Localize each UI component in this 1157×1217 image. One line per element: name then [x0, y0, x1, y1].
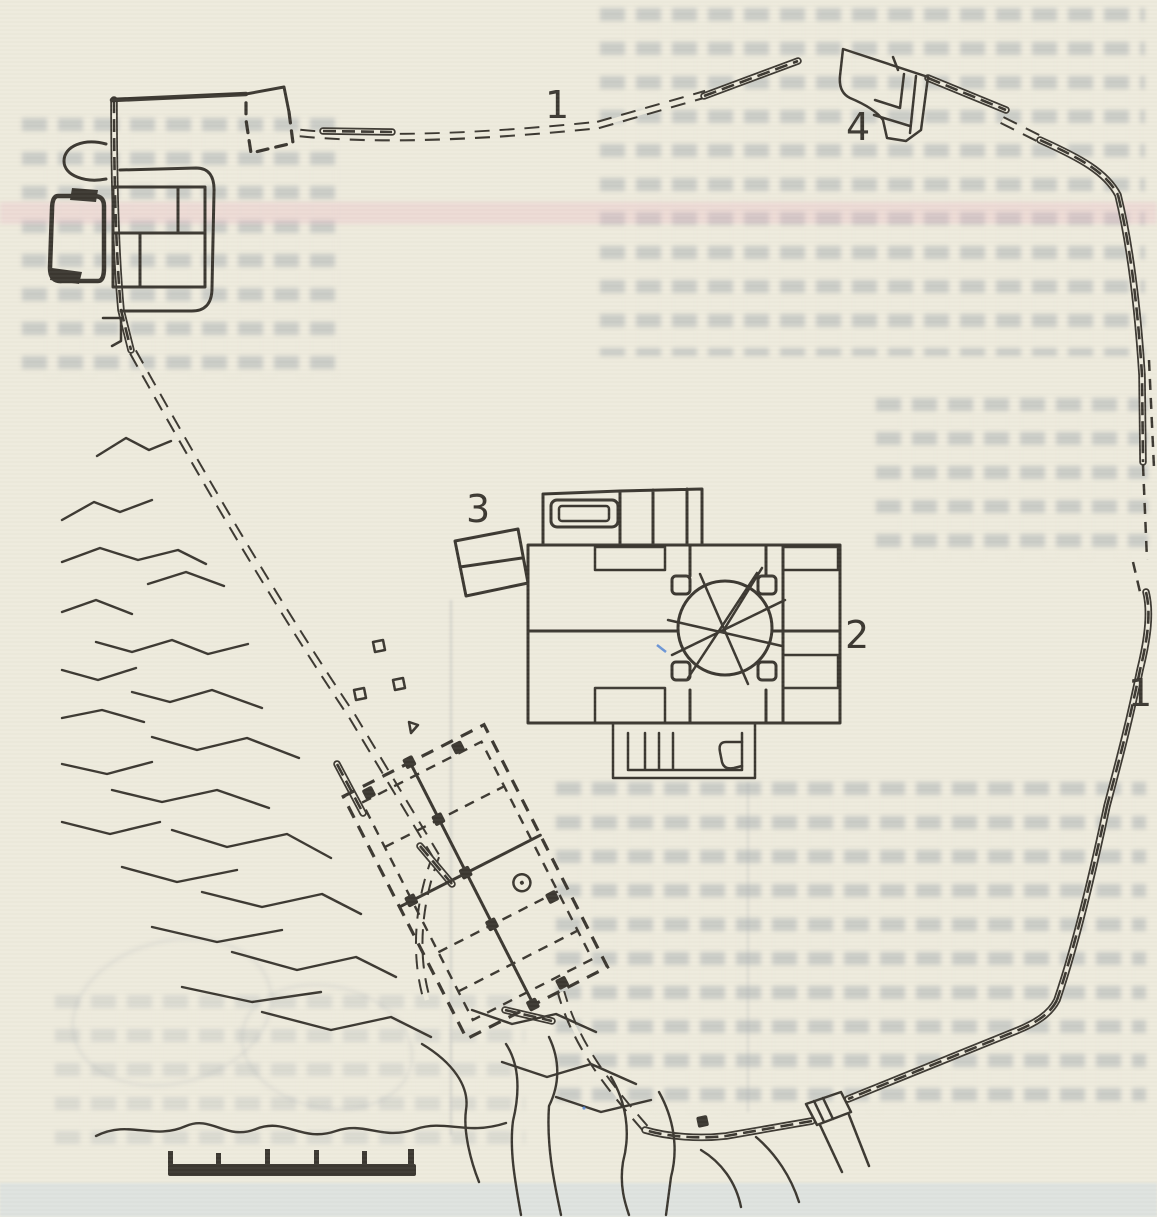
church-main-rect — [528, 545, 840, 723]
label-wall-north: 1 — [545, 83, 569, 127]
erosion-gullies — [62, 438, 799, 1215]
scattered-stones — [354, 640, 418, 733]
north-gate-passage — [874, 74, 916, 133]
tilted-tower-dashed-edge — [246, 96, 293, 153]
compound-well-dot — [519, 880, 524, 885]
church-recess-sw — [595, 688, 665, 723]
church-recess-nw — [595, 547, 665, 570]
dome-pier-nw — [672, 576, 690, 594]
church-axis-walls — [528, 547, 840, 723]
label-north-gate: 4 — [846, 105, 870, 149]
scanned-book-page: 1 1 2 3 4 — [0, 0, 1157, 1217]
dome-pier-se — [758, 662, 776, 680]
enclosure-wall — [133, 61, 1154, 1137]
church-recess-se — [783, 655, 838, 688]
scale-bar-ticks — [168, 1149, 414, 1165]
site-plan-figure: 1 1 2 3 4 — [0, 0, 1157, 1217]
gatehouse-north-wall — [112, 94, 246, 100]
south-gate — [696, 1092, 869, 1172]
label-central-building: 2 — [845, 613, 869, 657]
church-recess-ne — [783, 547, 838, 570]
church-nw-room-inner — [559, 506, 609, 521]
enclosure-wall-preserved-sections — [323, 61, 1148, 1137]
church-plan — [528, 489, 840, 778]
gatehouse-west-room — [50, 196, 104, 281]
church-porch-notch — [720, 742, 742, 768]
gatehouse-main-room — [120, 168, 214, 311]
dome-pier-ne — [758, 576, 776, 594]
curved-hook-wall — [64, 142, 106, 180]
scale-bar — [168, 1149, 416, 1176]
gatehouse-south-step — [103, 318, 121, 346]
south-gate-passage-walls — [820, 1115, 869, 1172]
gatehouse-inner-rooms — [113, 187, 205, 287]
gatehouse-complex — [50, 87, 293, 350]
wall-junction-pier — [696, 1115, 709, 1128]
small-building-outline — [455, 529, 528, 596]
church-north-block — [620, 489, 702, 545]
label-wall-east: 1 — [1128, 671, 1152, 715]
label-small-building: 3 — [466, 487, 490, 531]
wall-rubble — [50, 188, 98, 284]
church-south-porch — [613, 723, 755, 778]
north-gate-tick — [893, 57, 898, 70]
enclosure-wall-ruined-sections — [133, 94, 1154, 1128]
small-building — [455, 529, 528, 596]
feature-labels: 1 1 2 3 4 — [466, 83, 1152, 715]
tilted-tower-solid-edge — [246, 87, 289, 112]
dome-asterisk — [668, 568, 785, 684]
scale-bar-body — [168, 1164, 416, 1176]
